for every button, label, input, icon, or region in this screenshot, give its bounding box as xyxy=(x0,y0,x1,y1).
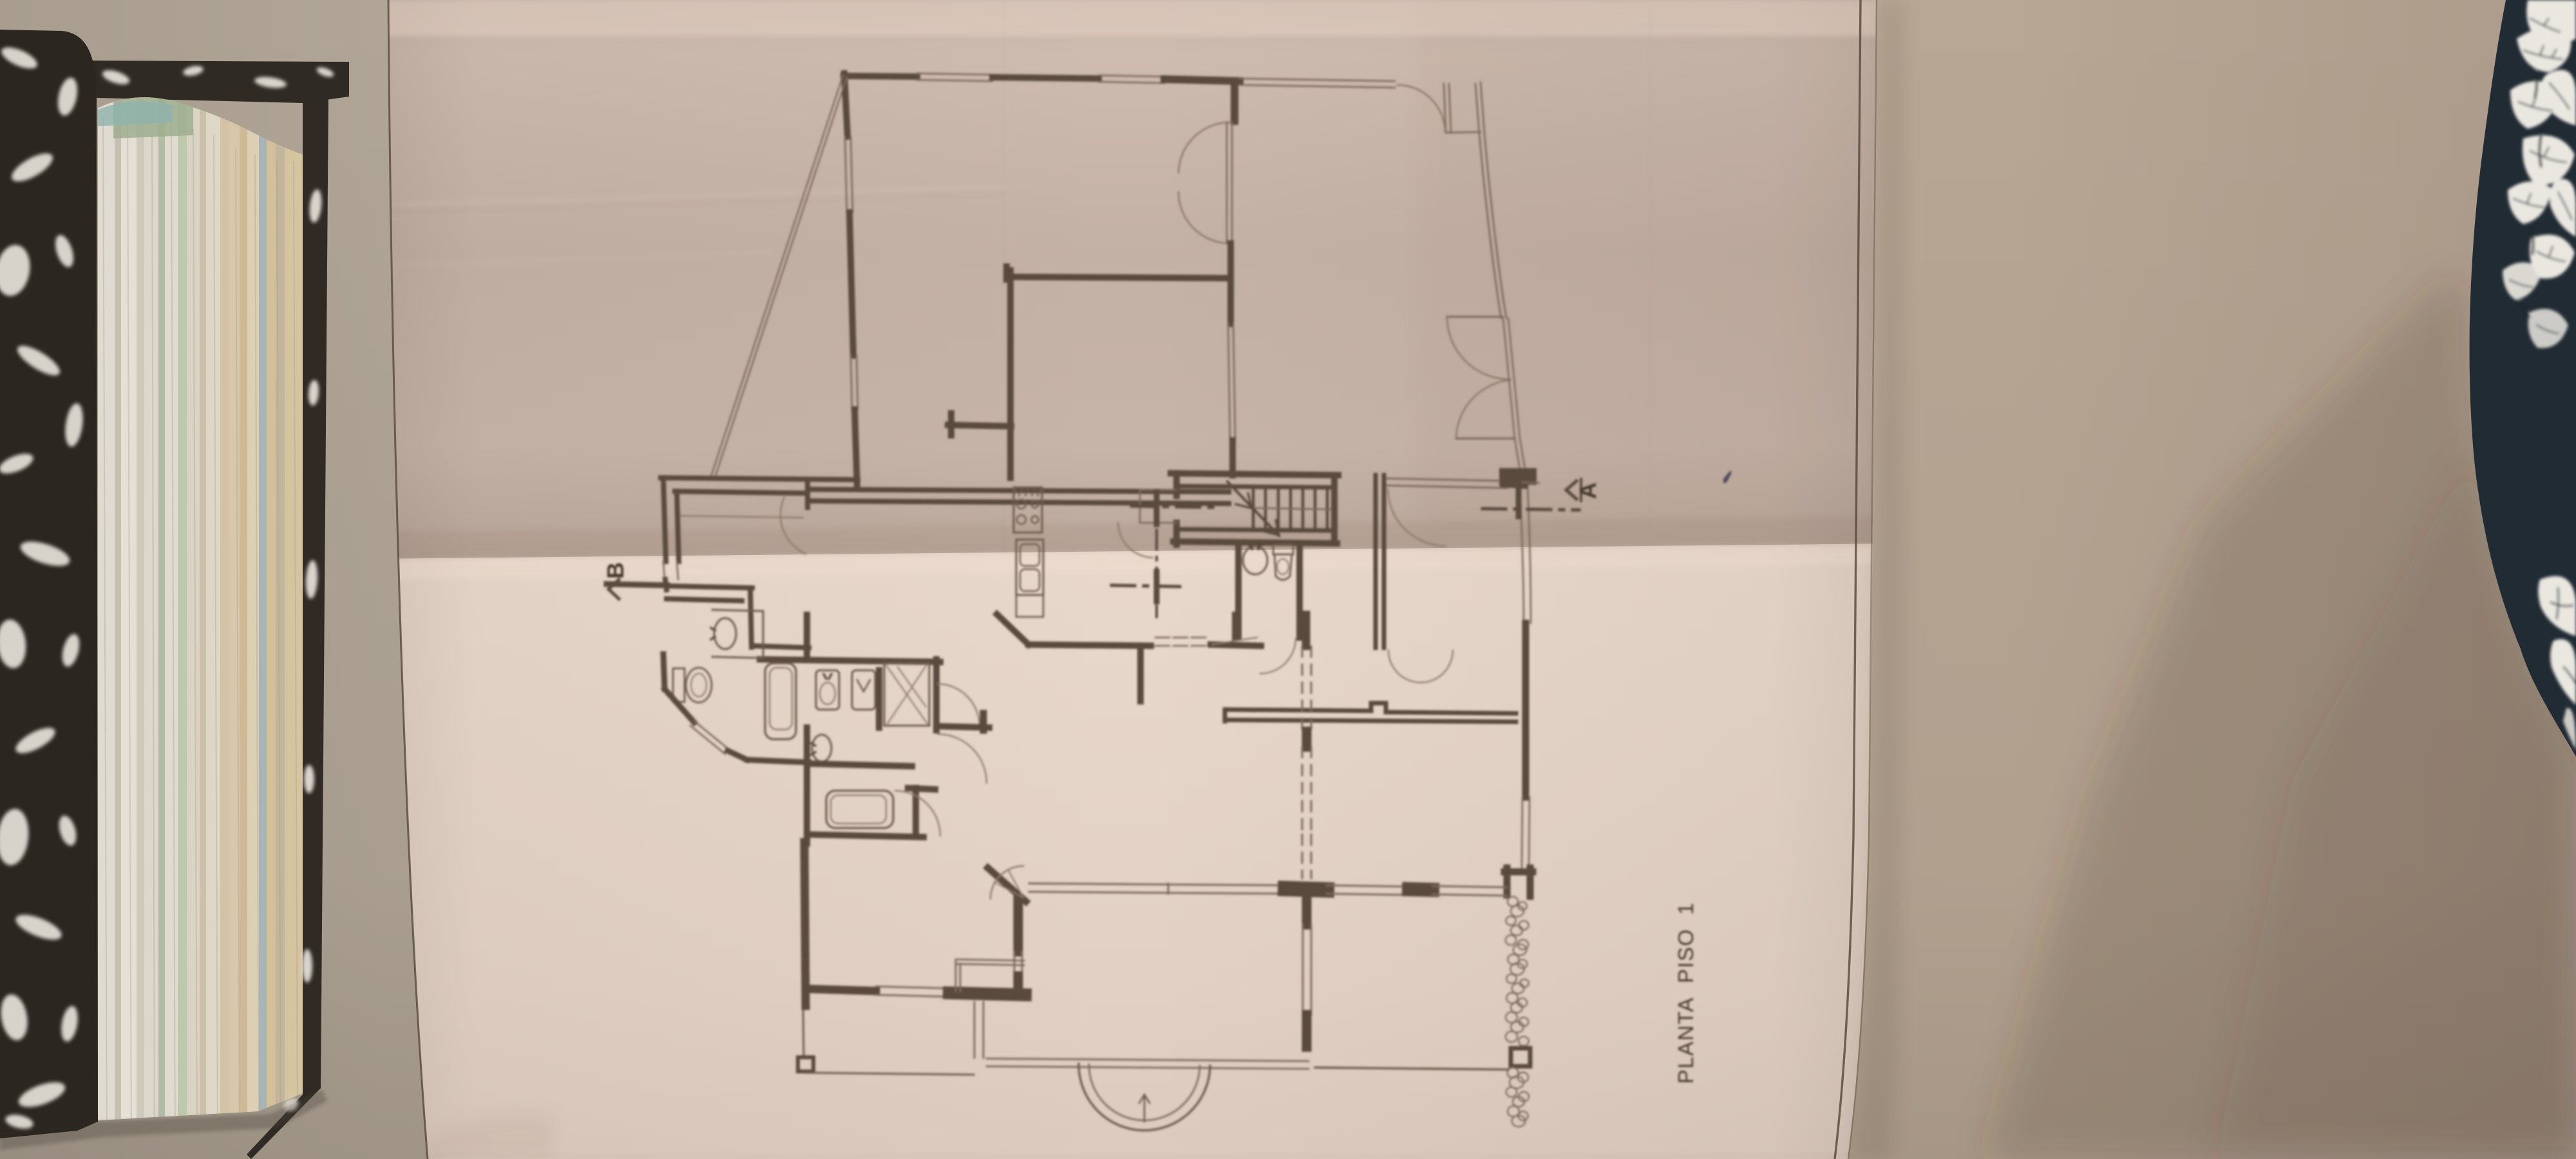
svg-text:PLANTA PISO 1: PLANTA PISO 1 xyxy=(1674,902,1698,1084)
svg-text:A: A xyxy=(1575,482,1601,499)
svg-text:B: B xyxy=(602,562,629,579)
